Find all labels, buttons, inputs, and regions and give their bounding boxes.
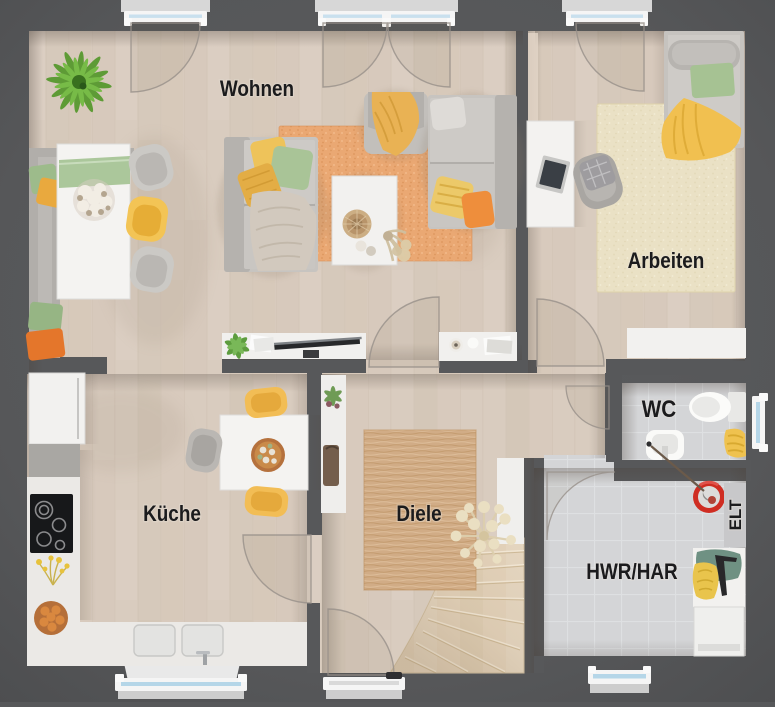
svg-text:HWR/HAR: HWR/HAR <box>586 560 678 585</box>
svg-text:ELT: ELT <box>726 499 745 530</box>
svg-text:Küche: Küche <box>143 502 201 527</box>
svg-text:Arbeiten: Arbeiten <box>628 249 705 274</box>
svg-text:Diele: Diele <box>396 502 441 527</box>
svg-text:WC: WC <box>642 396 676 423</box>
svg-text:Wohnen: Wohnen <box>220 77 294 102</box>
